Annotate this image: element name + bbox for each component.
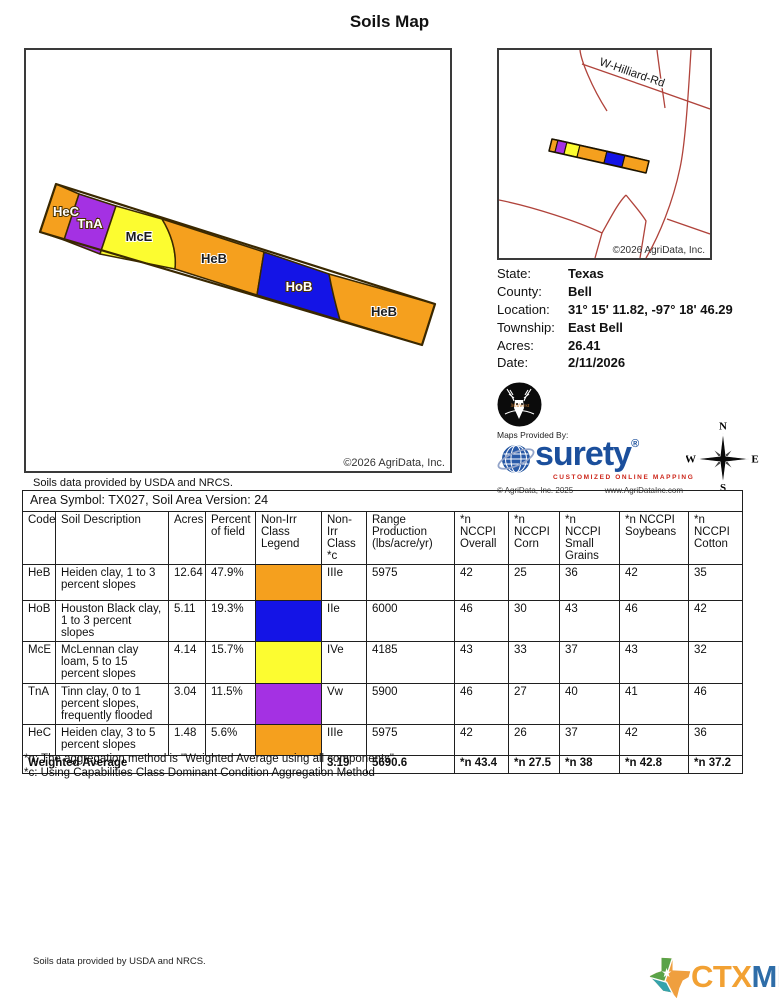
map-label-hob: HoB [286, 279, 313, 294]
col-header-production: Range Production (lbs/acre/yr) [367, 512, 455, 565]
info-label: State: [497, 266, 568, 281]
cell-class: IVe [322, 642, 367, 684]
surety-name: surety [535, 435, 631, 473]
cell-nccpi-small-grains: 37 [560, 642, 620, 684]
cell-nccpi-overall: 46 [455, 601, 509, 642]
cell-nccpi-soybeans: 42 [620, 565, 689, 601]
road-line [667, 219, 710, 234]
cell-acres: 5.11 [169, 601, 206, 642]
deer-logo-icon: Midwest [496, 381, 543, 428]
mls-text: MLS [752, 959, 779, 994]
locator-map-copyright: ©2026 AgriData, Inc. [613, 245, 705, 256]
ctxmls-wordmark: CTXMLS [691, 959, 779, 995]
page-title: Soils Map [0, 12, 779, 32]
table-row-hob: HoB Houston Black clay, 1 to 3 percent s… [23, 601, 743, 642]
info-row-state: State: Texas [497, 265, 767, 283]
cell-nccpi-cotton: 42 [689, 601, 743, 642]
deer-logo-text: Midwest [510, 403, 530, 409]
soil-parcel-map: HeC TnA McE HeB HoB HeB [26, 50, 450, 471]
cell-code: McE [23, 642, 56, 684]
col-header-percent: Percent of field [206, 512, 256, 565]
footnote-n: *n: The aggregation method is "Weighted … [24, 753, 394, 767]
cell-nccpi-overall: 42 [455, 725, 509, 756]
cell-description: Houston Black clay, 1 to 3 percent slope… [56, 601, 169, 642]
wa-soybeans: *n 42.8 [620, 756, 689, 774]
cell-code: HoB [23, 601, 56, 642]
cell-nccpi-small-grains: 40 [560, 684, 620, 725]
locator-map: W-Hilliard-Rd ©2026 AgriData, Inc. [497, 48, 712, 260]
table-column-header-row: Code Soil Description Acres Percent of f… [23, 512, 743, 565]
map-label-heb2: HeB [371, 304, 397, 319]
cell-nccpi-overall: 42 [455, 565, 509, 601]
info-row-acres: Acres: 26.41 [497, 336, 767, 354]
cell-nccpi-soybeans: 42 [620, 725, 689, 756]
surety-globe-icon [497, 441, 535, 477]
map-label-tna: TnA [77, 216, 103, 231]
cell-description: McLennan clay loam, 5 to 15 percent slop… [56, 642, 169, 684]
cell-class: IIIe [322, 565, 367, 601]
cell-nccpi-soybeans: 41 [620, 684, 689, 725]
legend-swatch [256, 565, 322, 601]
area-symbol-header: Area Symbol: TX027, Soil Area Version: 2… [23, 491, 743, 512]
col-header-nccpi-cotton: *n NCCPI Cotton [689, 512, 743, 565]
table-row-tna: TnA Tinn clay, 0 to 1 percent slopes, fr… [23, 684, 743, 725]
compass-e: E [751, 454, 758, 466]
cell-production: 6000 [367, 601, 455, 642]
cell-code: HeC [23, 725, 56, 756]
info-label: County: [497, 284, 568, 299]
main-map-copyright: ©2026 AgriData, Inc. [343, 457, 445, 469]
info-row-township: Township: East Bell [497, 318, 767, 336]
cell-class: IIe [322, 601, 367, 642]
cell-production: 4185 [367, 642, 455, 684]
col-header-acres: Acres [169, 512, 206, 565]
col-header-description: Soil Description [56, 512, 169, 565]
map-label-mce: McE [126, 229, 153, 244]
cell-class: Vw [322, 684, 367, 725]
surety-branding: Maps Provided By: surety® CUSTOMIZED ONL… [497, 430, 683, 495]
col-header-code: Code [23, 512, 56, 565]
ctx-text: CTX [691, 959, 752, 994]
wa-overall: *n 43.4 [455, 756, 509, 774]
legend-swatch [256, 725, 322, 756]
info-label: Date: [497, 355, 568, 370]
parcel-info-block: State: Texas County: Bell Location: 31° … [497, 265, 767, 372]
footnote-c: *c: Using Capabilities Class Dominant Co… [24, 767, 394, 781]
cell-production: 5975 [367, 565, 455, 601]
road-line [499, 200, 602, 258]
info-value: East Bell [568, 320, 623, 335]
cell-percent: 5.6% [206, 725, 256, 756]
table-footnotes: *n: The aggregation method is "Weighted … [24, 753, 394, 780]
surety-logo: surety® CUSTOMIZED ONLINE MAPPING [497, 441, 683, 478]
cell-nccpi-small-grains: 37 [560, 725, 620, 756]
cell-nccpi-overall: 43 [455, 642, 509, 684]
col-header-nccpi-soybeans: *n NCCPI Soybeans [620, 512, 689, 565]
texas-icon [648, 955, 692, 1001]
cell-nccpi-corn: 30 [509, 601, 560, 642]
cell-code: HeB [23, 565, 56, 601]
col-header-nccpi-small-grains: *n NCCPI Small Grains [560, 512, 620, 565]
cell-code: TnA [23, 684, 56, 725]
col-header-class: Non-Irr Class *c [322, 512, 367, 565]
cell-nccpi-cotton: 36 [689, 725, 743, 756]
table-row-mce: McE McLennan clay loam, 5 to 15 percent … [23, 642, 743, 684]
cell-nccpi-small-grains: 43 [560, 601, 620, 642]
info-value: 31° 15' 11.82, -97° 18' 46.29 [568, 302, 733, 317]
info-value: 2/11/2026 [568, 355, 625, 370]
midwest-deer-logo: Midwest [496, 381, 543, 428]
cell-acres: 1.48 [169, 725, 206, 756]
cell-nccpi-overall: 46 [455, 684, 509, 725]
cell-nccpi-soybeans: 43 [620, 642, 689, 684]
info-label: Township: [497, 320, 568, 335]
wa-corn: *n 27.5 [509, 756, 560, 774]
cell-production: 5975 [367, 725, 455, 756]
wa-small-grains: *n 38 [560, 756, 620, 774]
info-value: Bell [568, 284, 592, 299]
compass-w: W [686, 454, 696, 466]
map-label-hec: HeC [53, 204, 80, 219]
cell-nccpi-corn: 33 [509, 642, 560, 684]
col-header-legend: Non-Irr Class Legend [256, 512, 322, 565]
info-row-county: County: Bell [497, 283, 767, 301]
soils-data-note: Soils data provided by USDA and NRCS. [33, 477, 233, 489]
info-label: Acres: [497, 338, 568, 353]
cell-nccpi-cotton: 35 [689, 565, 743, 601]
cell-nccpi-soybeans: 46 [620, 601, 689, 642]
cell-nccpi-cotton: 46 [689, 684, 743, 725]
soils-table: Area Symbol: TX027, Soil Area Version: 2… [22, 490, 743, 774]
cell-acres: 12.64 [169, 565, 206, 601]
cell-acres: 3.04 [169, 684, 206, 725]
compass-rose: N S W E [686, 420, 760, 492]
cell-nccpi-corn: 27 [509, 684, 560, 725]
locator-roads-map: W-Hilliard-Rd [499, 50, 710, 258]
map-label-heb1: HeB [201, 251, 227, 266]
main-soils-map: HeC TnA McE HeB HoB HeB ©2026 AgriData, … [24, 48, 452, 473]
info-row-location: Location: 31° 15' 11.82, -97° 18' 46.29 [497, 301, 767, 319]
surety-tagline: CUSTOMIZED ONLINE MAPPING [553, 474, 694, 481]
cell-percent: 11.5% [206, 684, 256, 725]
wa-cotton: *n 37.2 [689, 756, 743, 774]
cell-class: IIIe [322, 725, 367, 756]
cell-nccpi-corn: 26 [509, 725, 560, 756]
cell-nccpi-corn: 25 [509, 565, 560, 601]
table-row-heb: HeB Heiden clay, 1 to 3 percent slopes 1… [23, 565, 743, 601]
road-line [602, 195, 626, 233]
footer-soils-note: Soils data provided by USDA and NRCS. [33, 956, 206, 967]
cell-acres: 4.14 [169, 642, 206, 684]
col-header-nccpi-overall: *n NCCPI Overall [455, 512, 509, 565]
soils-map-report-page: Soils Map HeC TnA McE HeB HoB HeB ©2026 [0, 0, 779, 1008]
compass-n: N [719, 421, 727, 433]
cell-percent: 19.3% [206, 601, 256, 642]
table-area-header-row: Area Symbol: TX027, Soil Area Version: 2… [23, 491, 743, 512]
registered-mark: ® [631, 438, 639, 450]
cell-nccpi-small-grains: 36 [560, 565, 620, 601]
ctxmls-logo: CTXMLS [648, 955, 778, 1003]
info-value: 26.41 [568, 338, 601, 353]
surety-wordmark: surety® [535, 437, 639, 471]
cell-description: Heiden clay, 1 to 3 percent slopes [56, 565, 169, 601]
cell-production: 5900 [367, 684, 455, 725]
col-header-nccpi-corn: *n NCCPI Corn [509, 512, 560, 565]
legend-swatch [256, 684, 322, 725]
cell-percent: 15.7% [206, 642, 256, 684]
info-value: Texas [568, 266, 604, 281]
cell-nccpi-cotton: 32 [689, 642, 743, 684]
legend-swatch [256, 601, 322, 642]
cell-description: Tinn clay, 0 to 1 percent slopes, freque… [56, 684, 169, 725]
legend-swatch [256, 642, 322, 684]
compass-icon: N S W E [686, 420, 760, 492]
table-row-hec: HeC Heiden clay, 3 to 5 percent slopes 1… [23, 725, 743, 756]
info-row-date: Date: 2/11/2026 [497, 354, 767, 372]
cell-description: Heiden clay, 3 to 5 percent slopes [56, 725, 169, 756]
info-label: Location: [497, 302, 568, 317]
cell-percent: 47.9% [206, 565, 256, 601]
